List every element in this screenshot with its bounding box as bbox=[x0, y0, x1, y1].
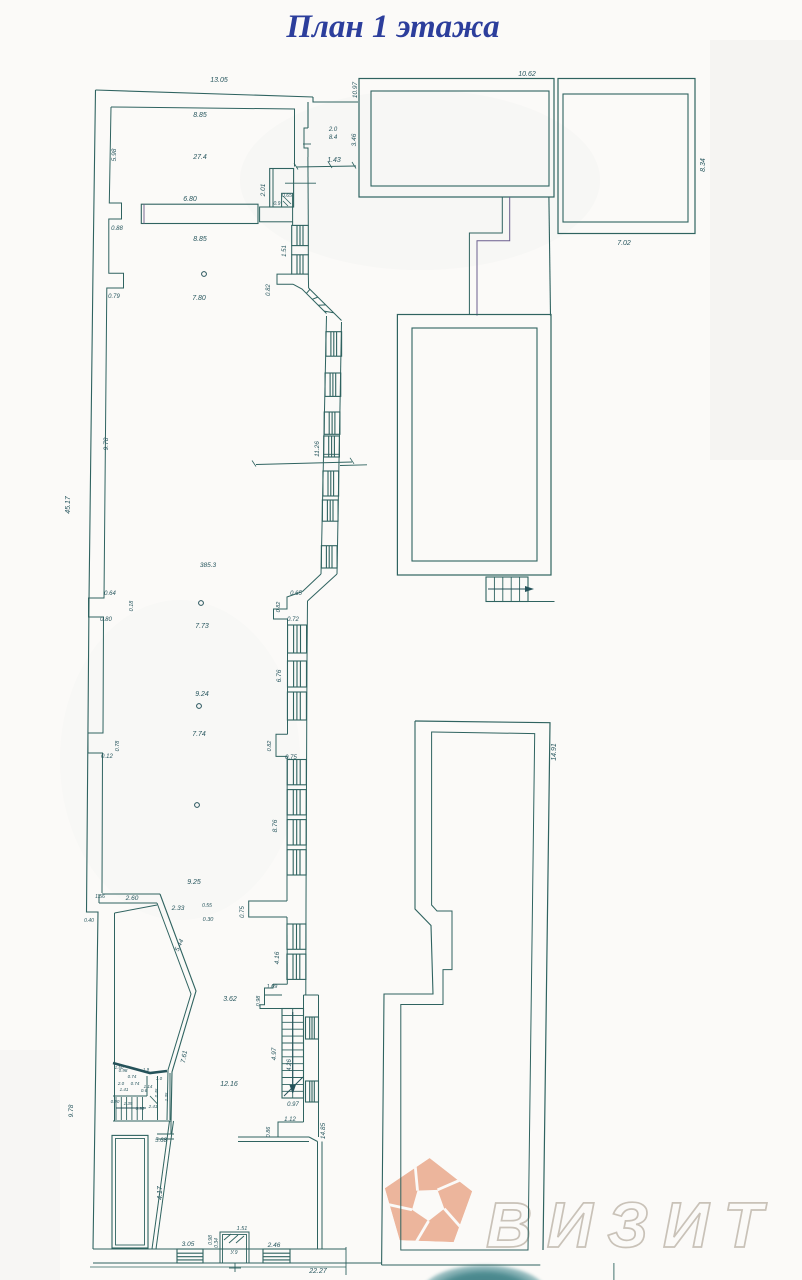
svg-text:0.65: 0.65 bbox=[290, 591, 302, 597]
svg-text:8.4: 8.4 bbox=[329, 135, 338, 141]
svg-text:0.75: 0.75 bbox=[240, 906, 246, 918]
svg-text:7.74: 7.74 bbox=[192, 731, 206, 738]
svg-text:4.17: 4.17 bbox=[157, 1185, 164, 1200]
svg-text:0.45: 0.45 bbox=[154, 1088, 159, 1097]
svg-text:9.78: 9.78 bbox=[68, 1104, 75, 1117]
svg-text:4.97: 4.97 bbox=[271, 1047, 278, 1060]
svg-text:14.85: 14.85 bbox=[320, 1122, 327, 1139]
svg-text:0.98: 0.98 bbox=[119, 1068, 128, 1073]
svg-text:1.9: 1.9 bbox=[143, 1067, 150, 1072]
svg-text:0.80: 0.80 bbox=[100, 617, 112, 623]
svg-text:10.62: 10.62 bbox=[518, 71, 536, 78]
svg-text:0.9: 0.9 bbox=[274, 201, 281, 207]
svg-text:2.41: 2.41 bbox=[148, 1104, 158, 1109]
svg-text:1.41: 1.41 bbox=[120, 1087, 129, 1092]
svg-text:22.27: 22.27 bbox=[308, 1268, 328, 1275]
svg-text:7.02: 7.02 bbox=[617, 240, 631, 247]
svg-text:8.85: 8.85 bbox=[193, 236, 207, 243]
svg-text:2.0: 2.0 bbox=[328, 127, 338, 133]
svg-text:12.16: 12.16 bbox=[220, 1081, 238, 1088]
svg-text:4.16: 4.16 bbox=[274, 951, 281, 964]
svg-text:3.62: 3.62 bbox=[223, 996, 237, 1003]
svg-text:7.80: 7.80 bbox=[192, 295, 206, 302]
svg-text:0.92: 0.92 bbox=[136, 1106, 145, 1111]
svg-text:0.98: 0.98 bbox=[256, 995, 262, 1007]
svg-text:27.4: 27.4 bbox=[192, 154, 207, 161]
svg-text:ВИЗИТ: ВИЗИТ bbox=[486, 1189, 777, 1261]
svg-text:2.0: 2.0 bbox=[117, 1081, 125, 1086]
svg-text:2.01: 2.01 bbox=[260, 183, 267, 197]
svg-text:0.75: 0.75 bbox=[285, 755, 297, 761]
svg-text:11.26: 11.26 bbox=[314, 441, 321, 457]
svg-text:7.73: 7.73 bbox=[195, 623, 209, 630]
svg-text:6.80: 6.80 bbox=[183, 196, 197, 203]
svg-text:0.79: 0.79 bbox=[108, 294, 120, 300]
svg-text:0.6: 0.6 bbox=[141, 1088, 148, 1093]
svg-text:10.97: 10.97 bbox=[352, 81, 359, 98]
svg-text:0.88: 0.88 bbox=[111, 226, 123, 232]
svg-text:3.05: 3.05 bbox=[182, 1241, 195, 1248]
svg-text:13.05: 13.05 bbox=[210, 77, 228, 84]
svg-text:5.98: 5.98 bbox=[111, 148, 118, 161]
svg-text:План 1 этажа: План 1 этажа bbox=[285, 9, 499, 45]
svg-text:1.12: 1.12 bbox=[284, 1117, 296, 1123]
svg-text:4.26: 4.26 bbox=[287, 1059, 293, 1071]
svg-text:У.9: У.9 bbox=[231, 1250, 238, 1256]
svg-text:1.43: 1.43 bbox=[327, 157, 341, 164]
svg-text:1.35: 1.35 bbox=[164, 1092, 169, 1101]
svg-text:9.24: 9.24 bbox=[195, 691, 209, 698]
svg-text:9.25: 9.25 bbox=[187, 879, 201, 886]
svg-text:0.74: 0.74 bbox=[128, 1074, 137, 1079]
svg-text:3.46: 3.46 bbox=[351, 133, 358, 146]
svg-text:8.85: 8.85 bbox=[193, 112, 207, 119]
svg-text:8.76: 8.76 bbox=[272, 819, 279, 832]
svg-text:1.56: 1.56 bbox=[95, 894, 105, 900]
svg-text:0.82: 0.82 bbox=[266, 284, 272, 296]
svg-text:6.76: 6.76 bbox=[276, 669, 283, 682]
svg-text:0.97: 0.97 bbox=[287, 1102, 299, 1108]
svg-text:0.12: 0.12 bbox=[101, 754, 113, 760]
svg-text:9.78: 9.78 bbox=[103, 437, 110, 450]
svg-text:0.82: 0.82 bbox=[276, 602, 282, 613]
svg-text:0.86: 0.86 bbox=[266, 1126, 272, 1138]
svg-text:5.68: 5.68 bbox=[155, 1138, 167, 1144]
svg-text:0.30: 0.30 bbox=[203, 917, 215, 923]
svg-text:2.60: 2.60 bbox=[125, 895, 139, 902]
svg-text:385.3: 385.3 bbox=[200, 562, 217, 569]
svg-text:2.46: 2.46 bbox=[267, 1242, 281, 1249]
svg-text:0.82: 0.82 bbox=[267, 741, 273, 752]
svg-text:0.65: 0.65 bbox=[282, 193, 292, 199]
svg-text:0.64: 0.64 bbox=[104, 591, 116, 597]
svg-text:1.09: 1.09 bbox=[267, 984, 278, 990]
svg-text:2.33: 2.33 bbox=[171, 905, 185, 912]
svg-text:0.90: 0.90 bbox=[111, 1099, 120, 1104]
svg-text:0.40: 0.40 bbox=[84, 918, 94, 924]
svg-text:0.55: 0.55 bbox=[202, 903, 212, 909]
svg-text:0.18: 0.18 bbox=[129, 600, 135, 612]
svg-text:1.51: 1.51 bbox=[237, 1226, 248, 1232]
svg-text:0.74: 0.74 bbox=[131, 1081, 140, 1086]
svg-text:0.78: 0.78 bbox=[115, 740, 121, 752]
svg-text:8.34: 8.34 bbox=[700, 158, 707, 172]
svg-text:1.0: 1.0 bbox=[156, 1076, 163, 1081]
svg-text:14.91: 14.91 bbox=[551, 743, 558, 761]
svg-text:1.51: 1.51 bbox=[282, 245, 288, 257]
svg-text:0.72: 0.72 bbox=[287, 617, 299, 623]
svg-text:1.35: 1.35 bbox=[124, 1101, 133, 1106]
svg-text:0.34: 0.34 bbox=[214, 1238, 220, 1248]
svg-text:45.17: 45.17 bbox=[65, 495, 72, 514]
